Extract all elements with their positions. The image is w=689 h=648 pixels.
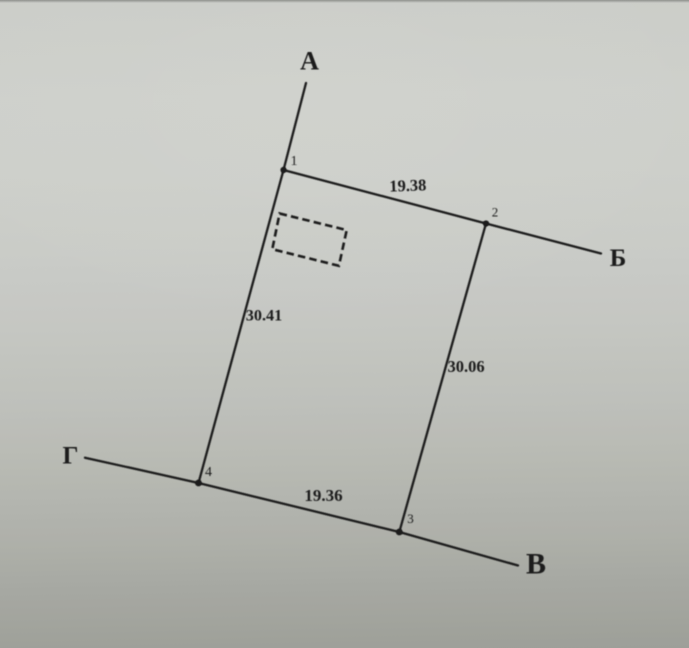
svg-text:19.36: 19.36 (304, 486, 342, 505)
svg-text:А: А (300, 47, 319, 76)
svg-text:2: 2 (492, 205, 499, 220)
svg-text:19.38: 19.38 (389, 175, 427, 195)
svg-text:Г: Г (63, 443, 79, 470)
svg-text:4: 4 (205, 465, 212, 480)
svg-text:Б: Б (610, 245, 627, 272)
svg-text:1: 1 (291, 154, 298, 169)
svg-text:В: В (526, 548, 546, 581)
svg-text:3: 3 (407, 511, 414, 526)
svg-text:30.06: 30.06 (447, 357, 484, 376)
svg-text:30.41: 30.41 (246, 306, 282, 324)
